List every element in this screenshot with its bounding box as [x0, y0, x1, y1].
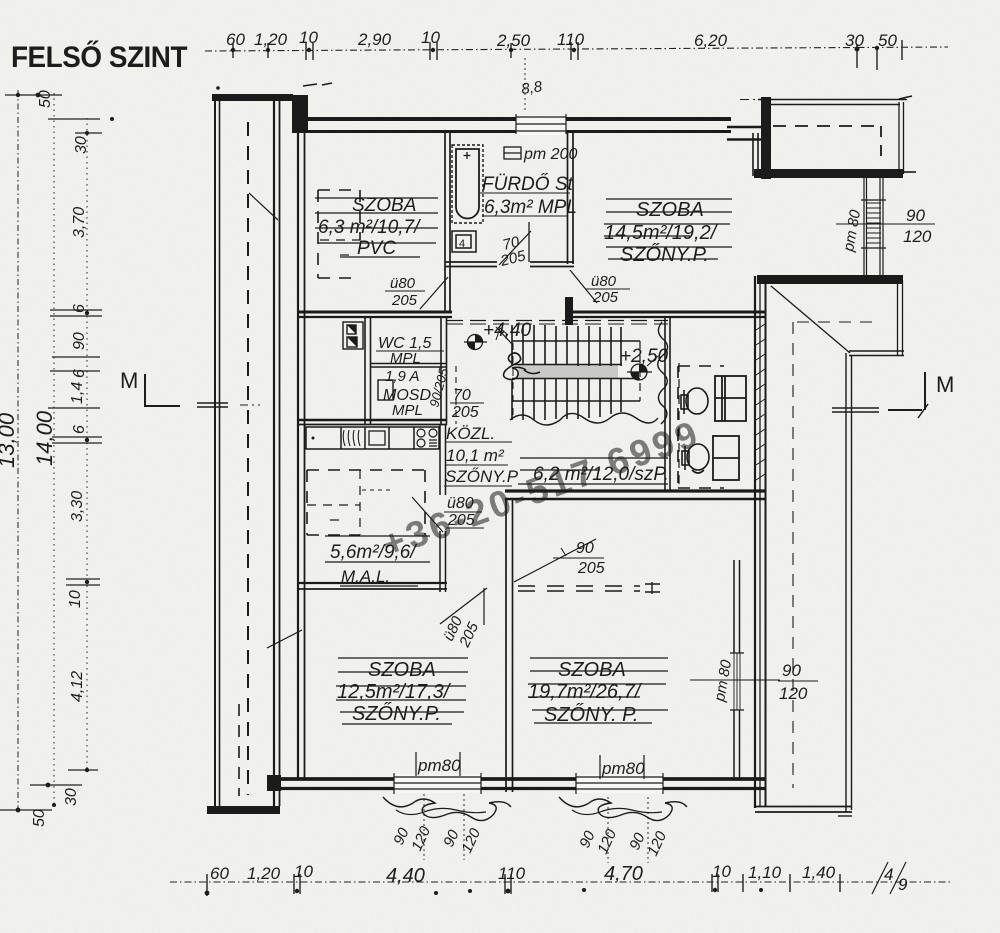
svg-text:120: 120	[903, 227, 932, 246]
svg-text:SZOBA: SZOBA	[352, 195, 416, 216]
svg-text:110: 110	[557, 30, 585, 49]
svg-text:FÜRDŐ St: FÜRDŐ St	[482, 173, 574, 195]
svg-text:M.A.L.: M.A.L.	[341, 567, 390, 586]
svg-text:pm80: pm80	[601, 759, 645, 778]
svg-text:14,5m²/19,2/: 14,5m²/19,2/	[604, 222, 719, 244]
svg-text:10: 10	[421, 28, 440, 47]
svg-text:1,20: 1,20	[254, 30, 288, 49]
svg-text:10: 10	[299, 28, 318, 47]
svg-text:6,3 m²/10,7/: 6,3 m²/10,7/	[318, 217, 421, 238]
svg-text:5,6m²/9,6/: 5,6m²/9,6/	[330, 542, 417, 563]
svg-text:ü80: ü80	[591, 273, 617, 290]
svg-text:110: 110	[498, 864, 526, 883]
svg-text:6,2 m²/12,0/szP.: 6,2 m²/12,0/szP.	[533, 464, 669, 485]
svg-text:10: 10	[712, 862, 731, 881]
svg-text:12,5m²/17,3/: 12,5m²/17,3/	[337, 681, 452, 703]
svg-text:30: 30	[73, 136, 90, 154]
svg-text:M: M	[936, 372, 954, 397]
svg-text:1,10: 1,10	[748, 863, 782, 882]
svg-text:10,1 m²: 10,1 m²	[446, 446, 505, 465]
svg-text:PVC: PVC	[357, 238, 396, 259]
svg-text:4,70: 4,70	[604, 863, 643, 885]
svg-text:30: 30	[63, 788, 80, 806]
svg-text:3,30: 3,30	[69, 491, 86, 522]
svg-text:SZŐNY.P.: SZŐNY.P.	[352, 702, 441, 725]
svg-text:MPL: MPL	[390, 350, 421, 367]
svg-text:50: 50	[37, 90, 54, 108]
svg-text:2,50: 2,50	[496, 31, 531, 50]
svg-text:19,7m²/26,7/: 19,7m²/26,7/	[528, 681, 643, 703]
svg-text:8,8: 8,8	[520, 78, 544, 98]
svg-text:205: 205	[451, 404, 479, 421]
svg-text:120: 120	[779, 684, 808, 703]
svg-text:4,40: 4,40	[386, 865, 425, 887]
svg-text:SZOBA: SZOBA	[558, 659, 626, 681]
svg-text:2,90: 2,90	[357, 30, 392, 49]
svg-text:50: 50	[31, 809, 48, 827]
svg-text:90: 90	[906, 206, 925, 225]
svg-text:3,70: 3,70	[71, 207, 88, 238]
svg-text:6: 6	[71, 425, 88, 434]
svg-text:pm 200: pm 200	[523, 146, 577, 163]
svg-text:KÖZL.: KÖZL.	[446, 424, 495, 443]
svg-text:14,00: 14,00	[32, 410, 57, 466]
svg-text:ü80: ü80	[390, 275, 416, 292]
svg-text:6,3m² MPL: 6,3m² MPL	[484, 197, 577, 218]
svg-text:6: 6	[71, 369, 88, 378]
svg-text:90: 90	[71, 332, 88, 350]
svg-text:60: 60	[226, 30, 245, 49]
svg-text:50: 50	[878, 31, 897, 50]
svg-text:1,20: 1,20	[247, 864, 281, 883]
svg-text:1,4: 1,4	[69, 382, 86, 404]
svg-text:+4,40: +4,40	[483, 320, 532, 341]
svg-text:10: 10	[67, 590, 84, 608]
svg-text:1,40: 1,40	[802, 863, 836, 882]
svg-text:+2,50: +2,50	[620, 346, 669, 367]
svg-text:30: 30	[845, 31, 864, 50]
svg-text:13,00: 13,00	[0, 412, 19, 468]
svg-text:205: 205	[391, 292, 418, 309]
svg-text:SZŐNY.P.: SZŐNY.P.	[620, 243, 709, 266]
svg-text:M: M	[120, 368, 138, 393]
svg-text:FELSŐ SZINT: FELSŐ SZINT	[11, 40, 187, 74]
svg-text:6,20: 6,20	[694, 31, 728, 50]
svg-text:10: 10	[294, 862, 313, 881]
svg-text:SZOBA: SZOBA	[636, 199, 704, 221]
svg-text:SZOBA: SZOBA	[368, 659, 436, 681]
svg-text:4: 4	[884, 865, 893, 884]
svg-text:4: 4	[459, 238, 465, 250]
svg-text:SZŐNY. P.: SZŐNY. P.	[544, 703, 639, 726]
svg-text:60: 60	[210, 864, 229, 883]
svg-text:6: 6	[71, 304, 88, 313]
svg-text:90: 90	[782, 661, 801, 680]
svg-text:205: 205	[592, 289, 619, 306]
svg-text:SZŐNY.P: SZŐNY.P	[445, 467, 519, 486]
svg-text:205: 205	[447, 512, 475, 529]
svg-text:9: 9	[898, 875, 908, 894]
svg-text:90: 90	[576, 540, 594, 557]
svg-text:MPL: MPL	[392, 402, 423, 419]
svg-text:pm80: pm80	[417, 756, 461, 775]
svg-text:205: 205	[577, 560, 605, 577]
svg-text:ü80: ü80	[447, 495, 474, 512]
svg-text:1,9 A: 1,9 A	[385, 368, 419, 385]
svg-text:4,12: 4,12	[69, 671, 86, 702]
